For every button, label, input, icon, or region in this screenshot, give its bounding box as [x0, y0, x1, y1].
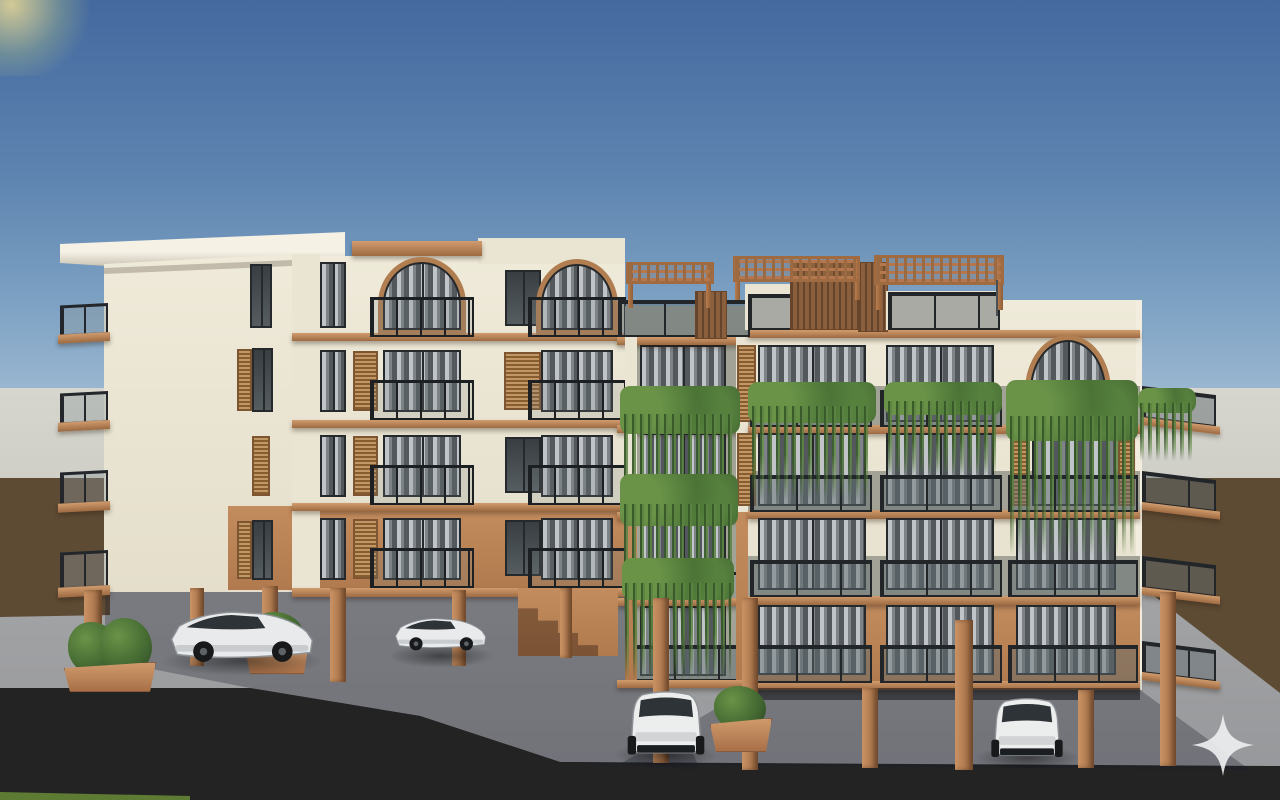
car [982, 684, 1072, 764]
hanging-plants [748, 382, 876, 502]
glass-railing [880, 645, 1002, 683]
hanging-plants [884, 382, 1002, 478]
hanging-plants [622, 558, 734, 682]
balcony-railing [750, 560, 872, 597]
pilotis-column [560, 588, 572, 658]
pergola-lattice [733, 256, 860, 282]
shutter [237, 521, 252, 579]
window [320, 435, 346, 497]
side-balcony-railing [60, 470, 108, 506]
cornice [748, 330, 1140, 338]
pergola-lattice [626, 262, 714, 284]
pilotis-column [862, 688, 878, 768]
parapet [478, 238, 625, 264]
shutter [237, 349, 252, 411]
antenna [996, 280, 998, 316]
juliet-railing [528, 297, 626, 337]
juliet-railing [370, 465, 474, 505]
juliet-railing [528, 548, 626, 588]
sun-flare [0, 0, 96, 76]
window [320, 262, 346, 328]
window [320, 350, 346, 412]
window [250, 264, 272, 328]
juliet-railing [370, 380, 474, 420]
roof-glass-railing [888, 292, 1000, 330]
juliet-railing [528, 380, 626, 420]
glass-railing [1008, 645, 1138, 683]
cornice [352, 241, 482, 256]
pilotis-column [955, 620, 973, 770]
car [166, 594, 316, 666]
balcony-railing [880, 475, 1002, 512]
sparkle-icon [1192, 714, 1254, 776]
pergola-lattice [874, 255, 1004, 285]
juliet-railing [370, 297, 474, 337]
pilotis-column [1078, 690, 1094, 768]
shutter [252, 436, 270, 496]
roof-glass-railing [618, 300, 750, 337]
hanging-plants [1006, 380, 1138, 558]
hanging-plants [1138, 388, 1196, 462]
pilotis-column [1160, 592, 1176, 766]
juliet-railing [528, 465, 626, 505]
floor-slab [748, 596, 1140, 605]
pilotis-column [330, 588, 346, 682]
floor-slab [292, 420, 625, 428]
architectural-render-scene [0, 0, 1280, 800]
side-balcony-railing [60, 550, 108, 590]
window [252, 348, 273, 412]
car [392, 602, 488, 658]
glass-railing [750, 645, 872, 683]
balcony-railing [1008, 560, 1138, 597]
wood-slat-wall [695, 291, 727, 339]
juliet-railing [370, 548, 474, 588]
window [320, 518, 346, 580]
window [252, 520, 273, 580]
car [622, 676, 710, 762]
balcony-railing [880, 560, 1002, 597]
